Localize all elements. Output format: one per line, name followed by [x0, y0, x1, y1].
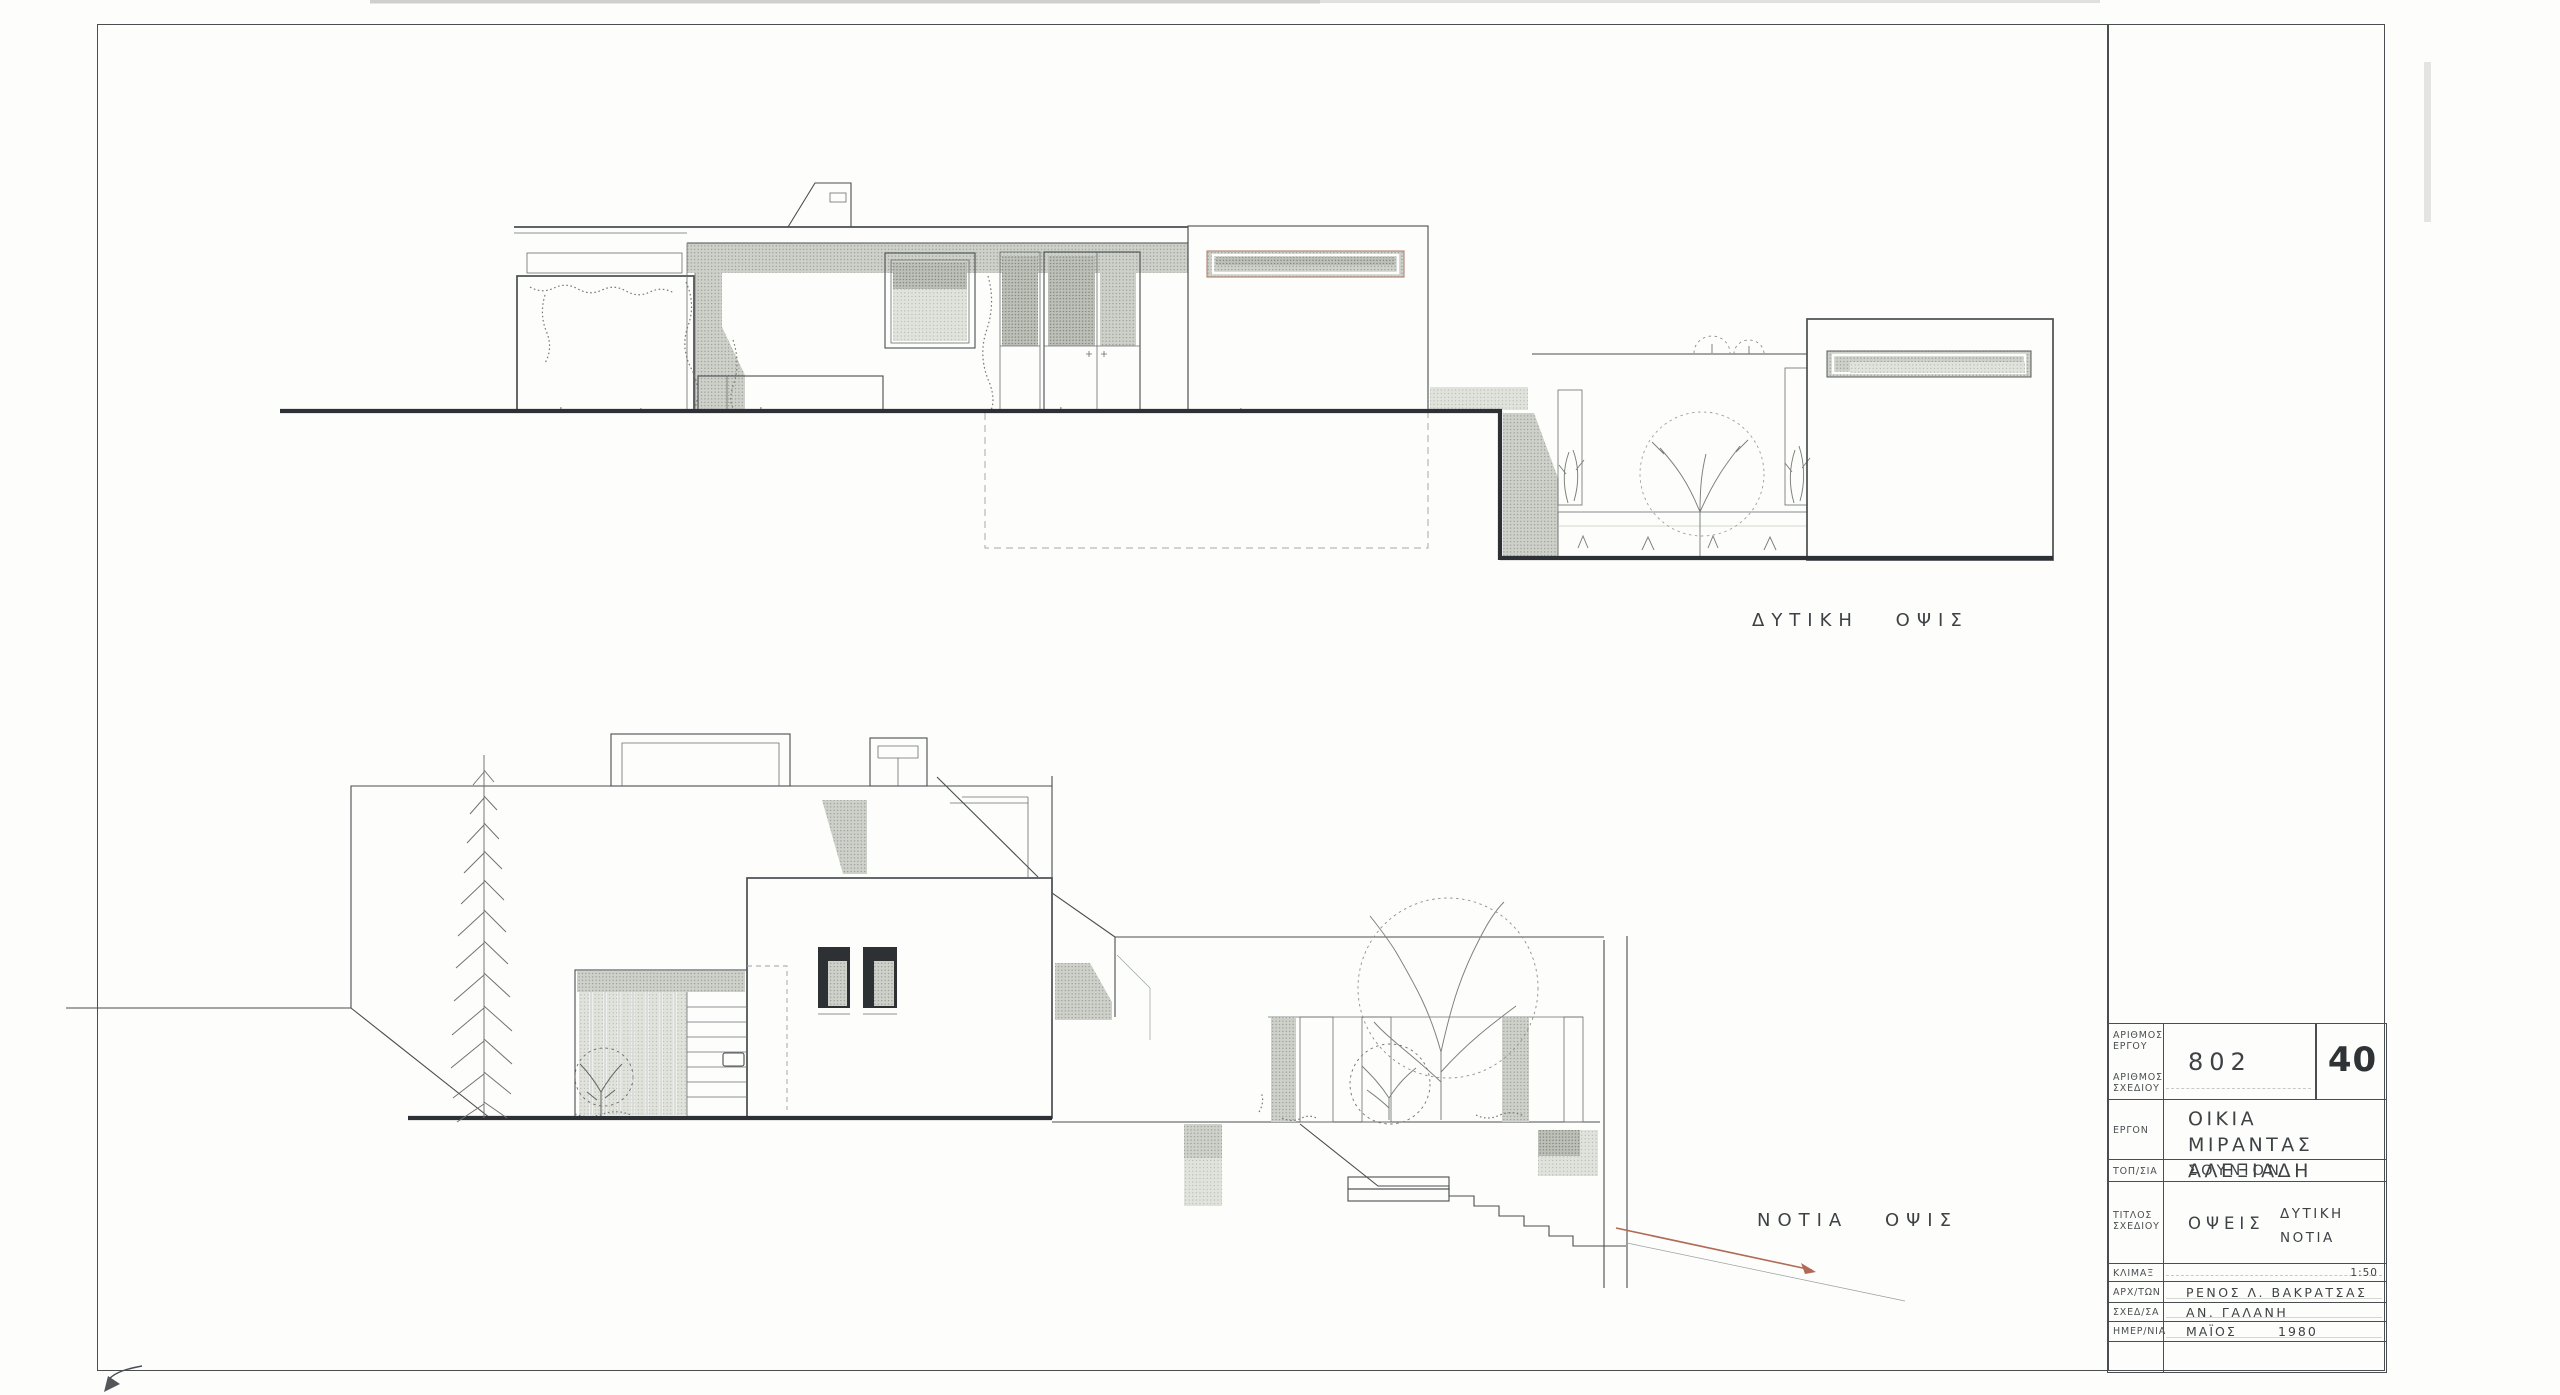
architectural-sheet: ΔΥΤΙΚΗ ΟΨΙΣ ΝΟΤΙΑ ΟΨΙΣ ΑΡΙΘΜΟΣ ΕΡΓΟΥ ΑΡΙ… [0, 0, 2560, 1395]
sheet-border [97, 24, 2385, 1371]
west-elevation-label: ΔΥΤΙΚΗ ΟΨΙΣ [1752, 610, 1969, 631]
title-block: ΑΡΙΘΜΟΣ ΕΡΓΟΥ ΑΡΙΘΜΟΣ ΣΧΕΔΙΟΥ 802 40 ΕΡΓ… [2107, 1023, 2387, 1373]
titleblock-row-empty [2108, 1342, 2386, 1374]
project-number-label: ΑΡΙΘΜΟΣ ΕΡΓΟΥ [2113, 1030, 2163, 1052]
project-label: ΕΡΓΟΝ [2113, 1125, 2149, 1136]
project-number: 802 [2188, 1048, 2252, 1076]
draftsman-value: ΑΝ. ΓΑΛΑΝΗ [2186, 1305, 2288, 1320]
location-label: ΤΟΠ/ΣΙΑ [2113, 1166, 2158, 1177]
project-name-line1: ΟΙΚΙΑ [2188, 1106, 2386, 1132]
titleblock-row-project: ΕΡΓΟΝ ΟΙΚΙΑ ΜΙΡΑΝΤΑΣ ΑΛΕΞΙΑΔΗ [2108, 1100, 2386, 1160]
date-label: ΗΜΕΡ/ΝΙΑ [2113, 1326, 2166, 1337]
location-value: ΣΟΥΝΙΟΝ [2188, 1163, 2283, 1179]
architect-value: ΡΕΝΟΣ Λ. ΒΑΚΡΑΤΣΑΣ [2186, 1285, 2367, 1300]
draftsman-label: ΣΧΕΔ/ΣΑ [2113, 1307, 2159, 1318]
drawing-title-sub1: ΔΥΤΙΚΗ [2280, 1202, 2344, 1226]
titleblock-row-location: ΤΟΠ/ΣΙΑ ΣΟΥΝΙΟΝ [2108, 1160, 2386, 1182]
drawing-number: 40 [2328, 1040, 2377, 1080]
scale-value: 1:50 [2350, 1267, 2378, 1279]
drawing-number-box: 40 [2315, 1024, 2388, 1100]
drawing-title-sub2: ΝΟΤΙΑ [2280, 1226, 2344, 1250]
drawing-title-label: ΤΙΤΛΟΣ ΣΧΕΔΙΟΥ [2113, 1210, 2160, 1232]
date-year: 1980 [2278, 1324, 2318, 1339]
drawing-title-value: ΟΨΕΙΣ [2188, 1214, 2265, 1233]
titleblock-row-date: ΗΜΕΡ/ΝΙΑ ΜΑΪΟΣ 1980 [2108, 1322, 2386, 1342]
scale-label: ΚΛΙΜΑΞ [2113, 1268, 2154, 1279]
date-month: ΜΑΪΟΣ [2186, 1324, 2237, 1339]
south-elevation-label: ΝΟΤΙΑ ΟΨΙΣ [1757, 1210, 1958, 1231]
titleblock-row-draftsman: ΣΧΕΔ/ΣΑ ΑΝ. ΓΑΛΑΝΗ [2108, 1303, 2386, 1322]
drawing-number-label: ΑΡΙΘΜΟΣ ΣΧΕΔΙΟΥ [2113, 1072, 2163, 1094]
titleblock-row-numbers: ΑΡΙΘΜΟΣ ΕΡΓΟΥ ΑΡΙΘΜΟΣ ΣΧΕΔΙΟΥ 802 40 [2108, 1024, 2386, 1100]
titleblock-row-scale: ΚΛΙΜΑΞ 1:50 [2108, 1264, 2386, 1282]
architect-label: ΑΡΧ/ΤΩΝ [2113, 1287, 2161, 1298]
titleblock-row-title: ΤΙΤΛΟΣ ΣΧΕΔΙΟΥ ΟΨΕΙΣ ΔΥΤΙΚΗ ΝΟΤΙΑ [2108, 1182, 2386, 1264]
titleblock-row-architect: ΑΡΧ/ΤΩΝ ΡΕΝΟΣ Λ. ΒΑΚΡΑΤΣΑΣ [2108, 1282, 2386, 1303]
